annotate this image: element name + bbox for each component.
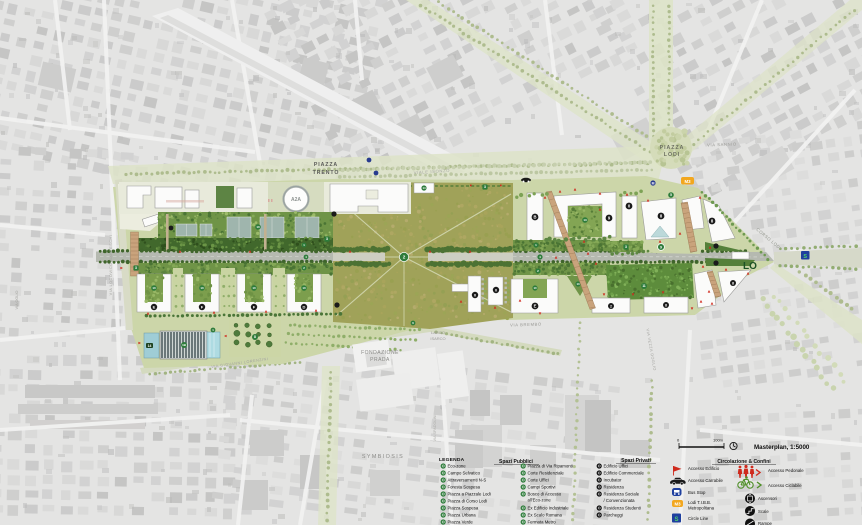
svg-text:9: 9 xyxy=(660,245,662,249)
svg-text:Bus Stop: Bus Stop xyxy=(688,490,706,495)
svg-text:10: 10 xyxy=(252,286,256,290)
svg-text:FONDAZIONE: FONDAZIONE xyxy=(361,350,399,356)
svg-text:VIA SANNIO: VIA SANNIO xyxy=(707,141,737,147)
svg-text:VIA SPADOLINI: VIA SPADOLINI xyxy=(433,415,437,442)
svg-text:10: 10 xyxy=(152,286,156,290)
svg-text:S: S xyxy=(674,517,678,523)
svg-text:8: 8 xyxy=(732,281,734,285)
svg-text:Ex Scalo Romana: Ex Scalo Romana xyxy=(528,513,563,518)
svg-text:Accesso Edificio: Accesso Edificio xyxy=(688,466,720,471)
svg-text:LEGENDA: LEGENDA xyxy=(439,457,465,463)
svg-text:Piazza di Via Ripamonti: Piazza di Via Ripamonti xyxy=(528,464,573,469)
svg-text:3: 3 xyxy=(484,185,486,189)
svg-text:SYMBIOSIS: SYMBIOSIS xyxy=(362,454,404,460)
svg-text:3: 3 xyxy=(326,237,328,241)
svg-text:Edificio Uffici: Edificio Uffici xyxy=(604,464,629,469)
svg-text:Foresta Sospesa: Foresta Sospesa xyxy=(448,485,481,490)
svg-text:ISARCO: ISARCO xyxy=(430,336,445,341)
svg-text:M: M xyxy=(652,182,655,186)
svg-text:LODI: LODI xyxy=(664,152,680,158)
svg-text:Lodi T.I.B.B.: Lodi T.I.B.B. xyxy=(688,500,711,505)
svg-text:Bosco di Accesso: Bosco di Accesso xyxy=(528,492,562,497)
svg-text:14: 14 xyxy=(422,186,426,190)
svg-text:Residenza Studenti: Residenza Studenti xyxy=(604,506,641,511)
svg-text:Accesso Ciclabile: Accesso Ciclabile xyxy=(768,483,802,488)
svg-text:13: 13 xyxy=(576,282,580,286)
svg-text:TRENTO: TRENTO xyxy=(313,170,340,176)
svg-text:Residenza: Residenza xyxy=(604,485,625,490)
svg-text:PIAZZA: PIAZZA xyxy=(660,145,685,151)
svg-text:Piazza di Corso Lodi: Piazza di Corso Lodi xyxy=(448,499,487,504)
svg-text:Fermata Metro: Fermata Metro xyxy=(528,520,557,525)
svg-text:all'Eco-zone: all'Eco-zone xyxy=(528,497,552,502)
svg-text:2: 2 xyxy=(403,255,406,260)
svg-text:Circolazione & Confini: Circolazione & Confini xyxy=(717,459,771,465)
svg-text:M3: M3 xyxy=(684,179,691,184)
svg-text:Incubator: Incubator xyxy=(604,478,622,483)
svg-text:Corte Uffici: Corte Uffici xyxy=(528,478,549,483)
svg-text:B: B xyxy=(533,215,536,220)
svg-text:10: 10 xyxy=(302,286,306,290)
svg-text:VIA OGLIO: VIA OGLIO xyxy=(15,290,19,309)
svg-text:A2A: A2A xyxy=(291,197,301,203)
svg-text:Piazza Verde: Piazza Verde xyxy=(448,520,474,525)
svg-text:Piazza Urbana: Piazza Urbana xyxy=(448,513,477,518)
svg-text:Ex Edificio Industriale: Ex Edificio Industriale xyxy=(528,506,570,511)
svg-text:LARGO: LARGO xyxy=(431,330,445,335)
svg-text:11: 11 xyxy=(642,284,646,288)
svg-text:5: 5 xyxy=(670,193,672,197)
svg-text:10: 10 xyxy=(200,286,204,290)
svg-text:Masterplan, 1:5000: Masterplan, 1:5000 xyxy=(754,444,810,451)
svg-text:Metropolitana: Metropolitana xyxy=(688,506,715,511)
svg-text:13: 13 xyxy=(583,218,587,222)
svg-text:PIAZZA: PIAZZA xyxy=(314,162,338,168)
svg-text:2: 2 xyxy=(610,304,612,308)
svg-text:8: 8 xyxy=(665,303,667,307)
svg-text:D: D xyxy=(303,304,306,309)
svg-text:0: 0 xyxy=(495,288,497,292)
svg-text:3: 3 xyxy=(625,245,627,249)
svg-text:Rampe: Rampe xyxy=(758,521,772,525)
svg-text:Attraversamenti N-S: Attraversamenti N-S xyxy=(448,478,487,483)
svg-text:PRADA: PRADA xyxy=(370,357,390,363)
svg-text:Corte Residenziale: Corte Residenziale xyxy=(528,471,565,476)
svg-text:10: 10 xyxy=(256,225,260,229)
svg-text:0: 0 xyxy=(474,293,476,297)
svg-text:Accesso Pedonale: Accesso Pedonale xyxy=(768,468,804,473)
svg-text:14: 14 xyxy=(148,344,152,348)
svg-text:Piazza Sospesa: Piazza Sospesa xyxy=(448,506,479,511)
svg-text:10: 10 xyxy=(533,286,537,290)
svg-text:Circle Line: Circle Line xyxy=(688,516,709,521)
svg-text:Scale: Scale xyxy=(758,509,769,514)
svg-text:8: 8 xyxy=(254,335,256,339)
svg-text:Accesso Carrabile: Accesso Carrabile xyxy=(688,478,723,483)
svg-text:100m: 100m xyxy=(713,438,724,443)
svg-text:Campo Selvatico: Campo Selvatico xyxy=(448,471,481,476)
svg-text:Ascensori: Ascensori xyxy=(758,496,777,501)
svg-text:LO: LO xyxy=(743,261,757,272)
svg-text:M3: M3 xyxy=(674,501,681,506)
svg-text:Piazza a Piazzale Lodi: Piazza a Piazzale Lodi xyxy=(448,492,491,497)
svg-text:Residenza Sociale: Residenza Sociale xyxy=(604,492,640,497)
svg-text:E: E xyxy=(534,304,537,309)
svg-text:E: E xyxy=(153,304,156,309)
svg-text:Edificio Commerciale: Edificio Commerciale xyxy=(604,471,645,476)
svg-text:Eco-zone: Eco-zone xyxy=(448,464,467,469)
svg-text:Campi Sportivi: Campi Sportivi xyxy=(528,485,556,490)
svg-text:Parcheggi: Parcheggi xyxy=(604,513,623,518)
svg-text:VIA LODOVICO BARTESCHI: VIA LODOVICO BARTESCHI xyxy=(109,235,113,296)
svg-text:S: S xyxy=(803,254,807,260)
svg-text:/ Convenzionata: / Convenzionata xyxy=(604,498,636,503)
svg-text:3: 3 xyxy=(135,266,137,270)
